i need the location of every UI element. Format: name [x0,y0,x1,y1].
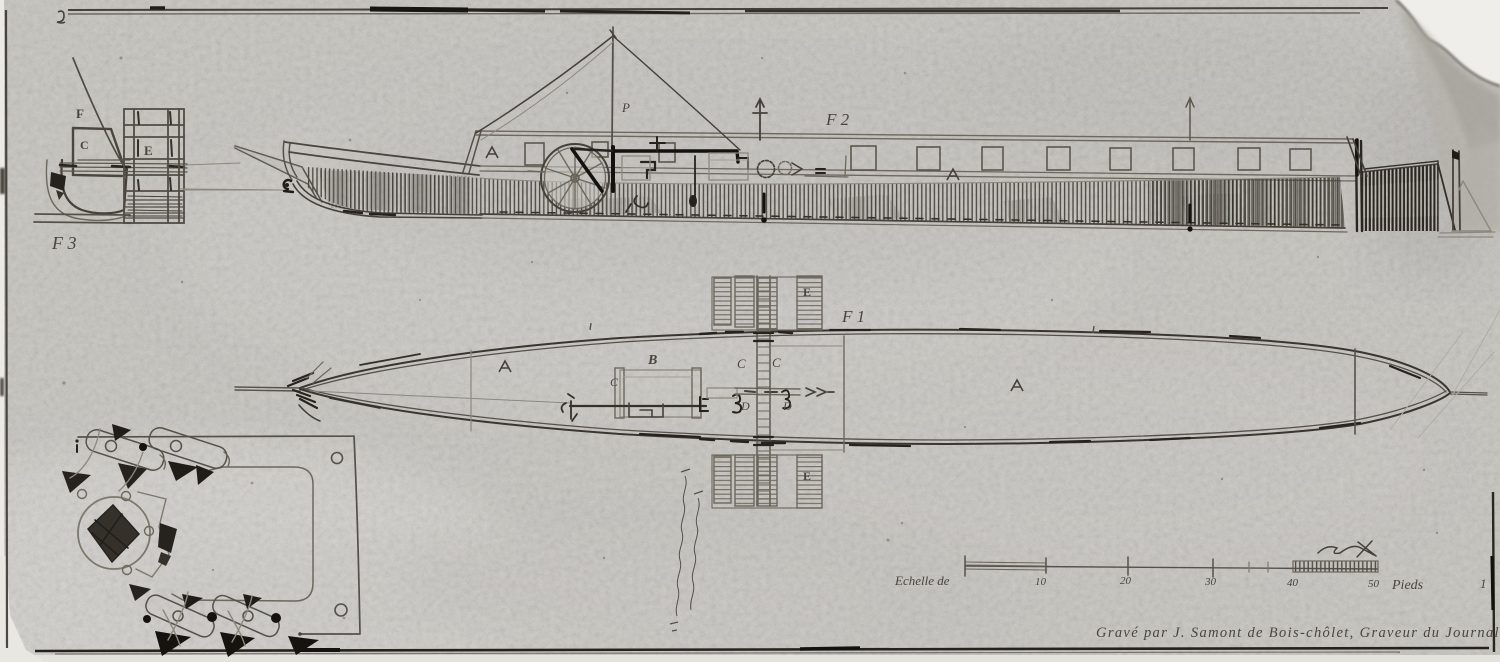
svg-text:C: C [80,138,89,152]
svg-text:Gravé par J. Samont de Bois-ch: Gravé par J. Samont de Bois-chôlet, Grav… [1096,625,1500,641]
svg-text:F 1: F 1 [841,307,865,326]
svg-text:B: B [647,353,657,368]
svg-text:F: F [76,106,84,121]
svg-text:E: E [803,469,811,483]
svg-text:Echelle de: Echelle de [894,573,950,588]
svg-text:50: 50 [1368,578,1380,590]
svg-text:20: 20 [1120,575,1132,587]
svg-text:P: P [621,100,630,115]
svg-text:Pieds: Pieds [1391,578,1424,593]
svg-text:10: 10 [1035,576,1047,588]
svg-text:C: C [772,355,781,370]
svg-text:E: E [144,143,153,158]
svg-text:40: 40 [1287,577,1299,589]
svg-text:1: 1 [1480,576,1487,591]
svg-text:C: C [737,356,746,371]
svg-text:E: E [803,285,811,299]
svg-text:F 3: F 3 [51,233,77,253]
svg-text:D: D [740,399,750,413]
svg-text:D: D [782,399,792,413]
svg-text:C: C [610,375,619,389]
svg-text:F 2: F 2 [825,110,850,129]
svg-text:30: 30 [1204,576,1217,588]
